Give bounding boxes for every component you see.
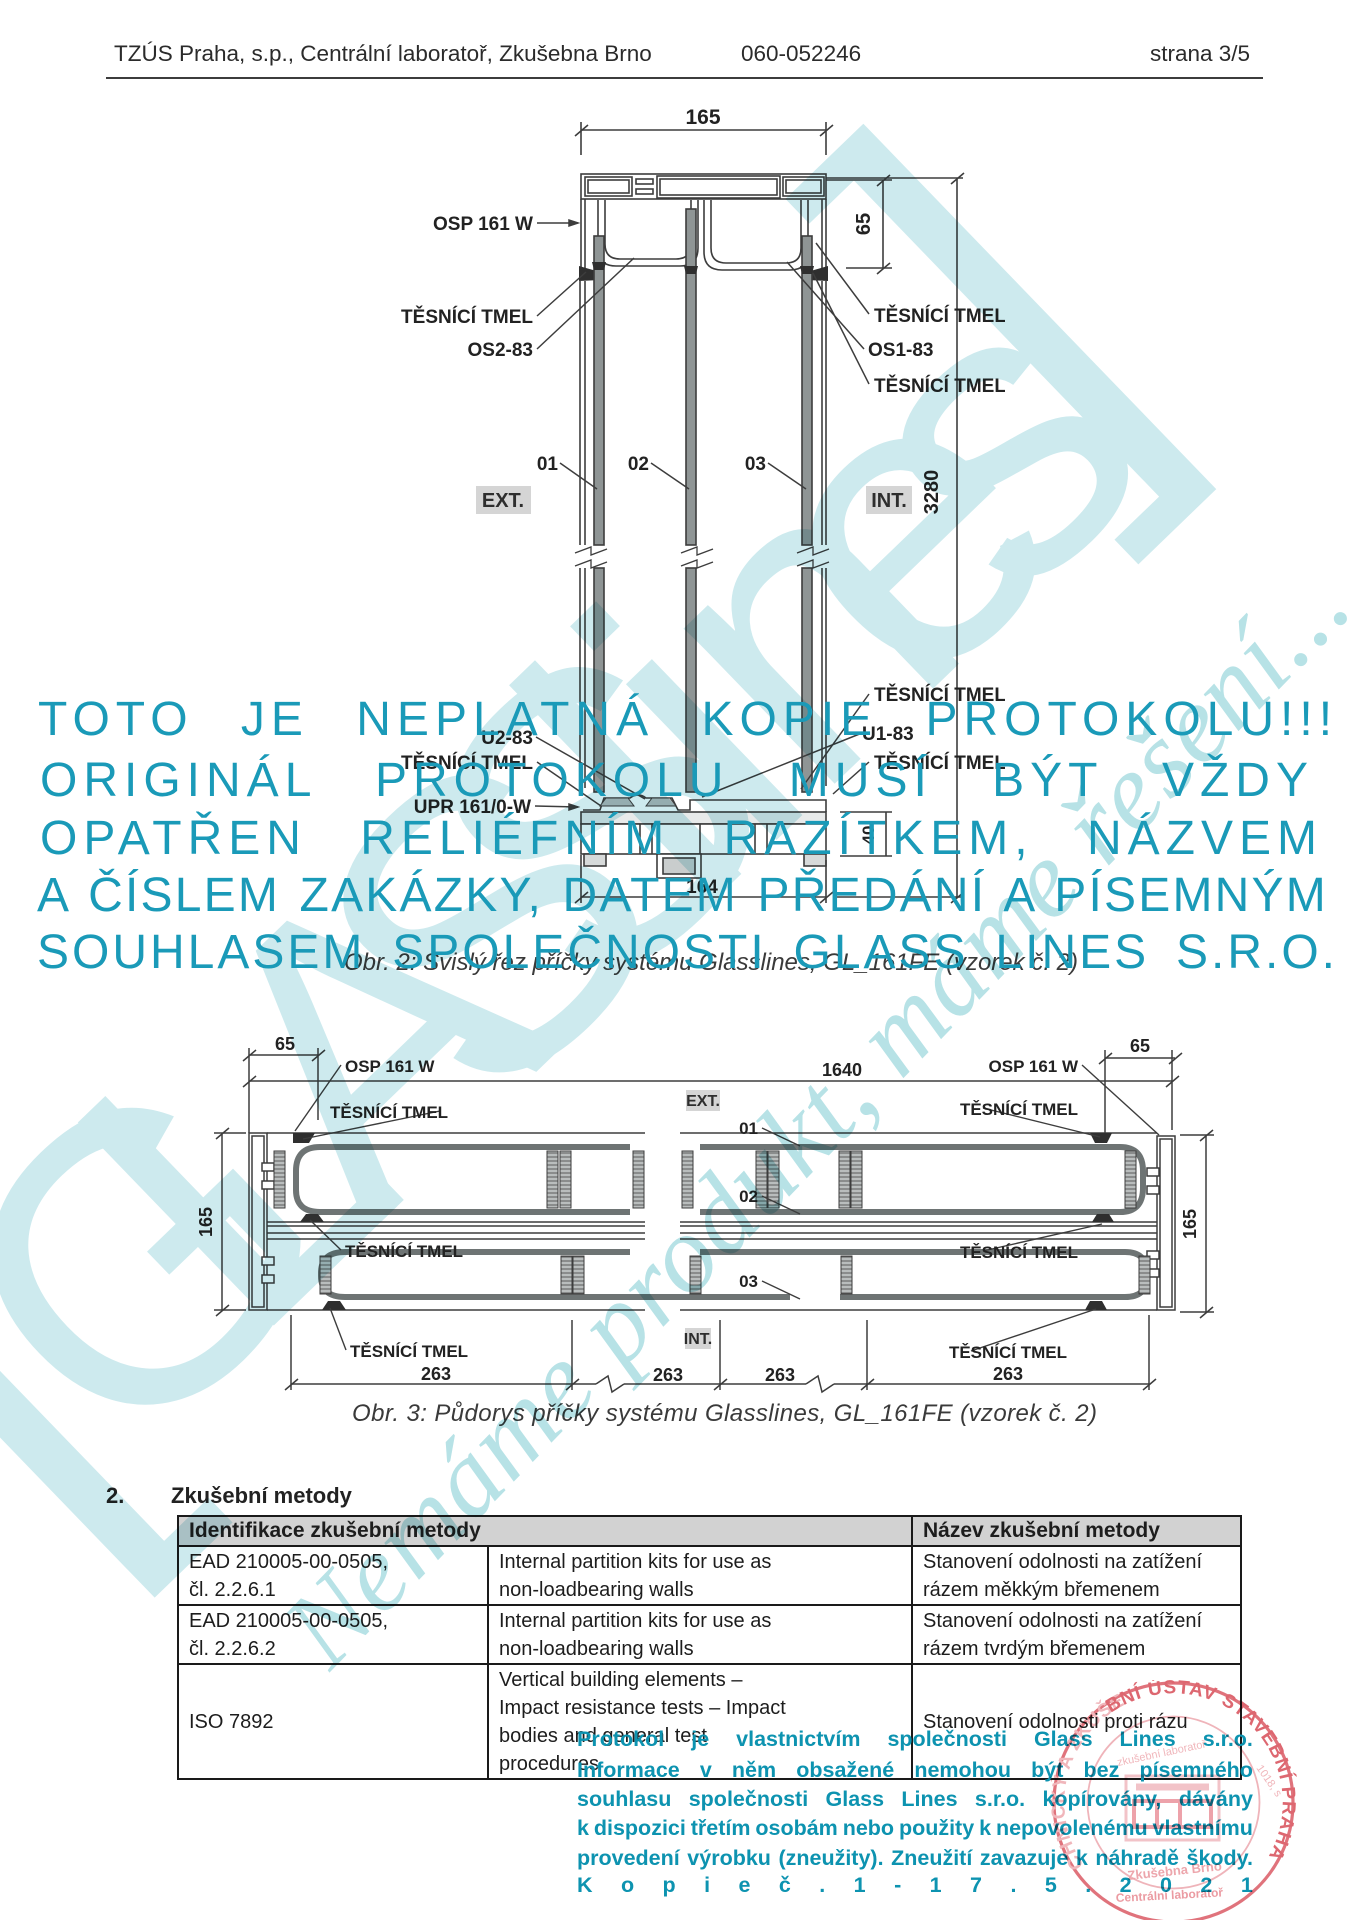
svg-text:Centrální laboratoř: Centrální laboratoř [1115, 1885, 1223, 1905]
svg-text:CHNICKÝ A ZKUŠE: CHNICKÝ A ZKUŠE [1048, 1690, 1128, 1874]
svg-text:Zkušebna Brno: Zkušebna Brno [1127, 1858, 1223, 1883]
svg-text:zkušební laboratoř: zkušební laboratoř [1116, 1738, 1207, 1769]
